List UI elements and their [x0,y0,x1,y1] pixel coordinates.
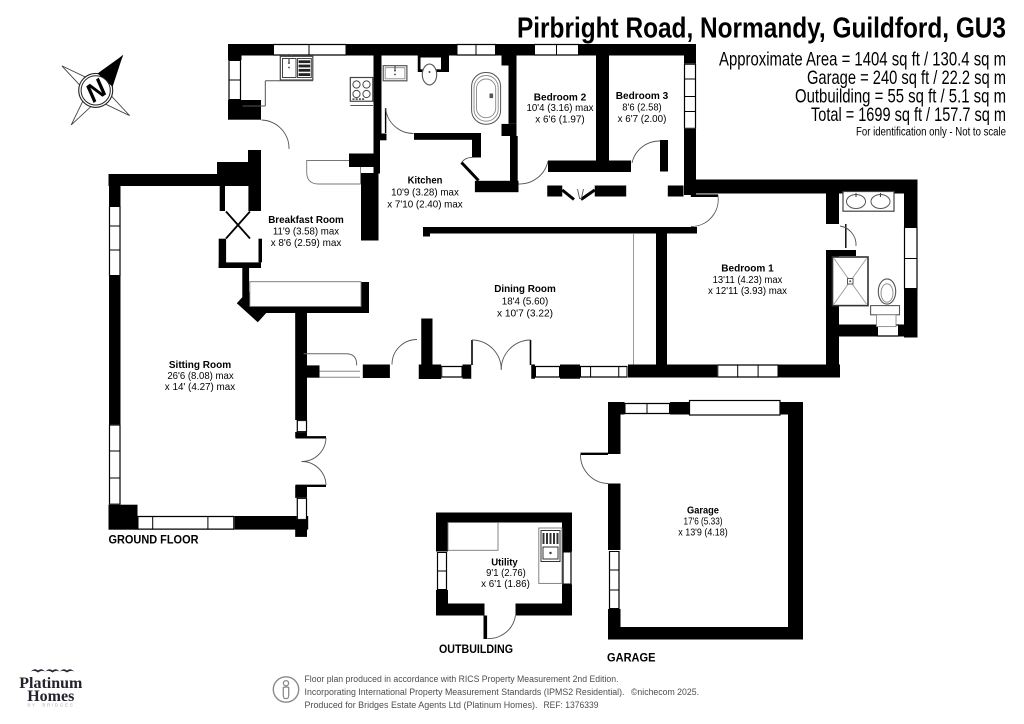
svg-text:x 14' (4.27) max: x 14' (4.27) max [165,382,235,393]
svg-text:Floor plan produced in accorda: Floor plan produced in accordance with R… [305,674,619,684]
svg-text:10'4 (3.16) max: 10'4 (3.16) max [527,103,594,114]
svg-text:For identification only - Not: For identification only - Not to scale [856,127,1006,139]
svg-text:Incorporating International Pr: Incorporating International Property Mea… [305,687,625,697]
svg-text:18'4 (5.60): 18'4 (5.60) [502,297,549,308]
svg-text:Total = 1699 sq ft / 157.7 sq: Total = 1699 sq ft / 157.7 sq m [811,104,1006,126]
svg-text:8'6 (2.58): 8'6 (2.58) [622,103,661,114]
svg-text:Utility: Utility [491,558,518,569]
svg-text:11'9 (3.58) max: 11'9 (3.58) max [273,227,339,238]
svg-text:9'1 (2.76): 9'1 (2.76) [486,568,526,579]
svg-text:Breakfast Room: Breakfast Room [268,215,344,226]
svg-text:GROUND FLOOR: GROUND FLOOR [109,535,200,547]
svg-text:OUTBUILDING: OUTBUILDING [439,644,513,656]
svg-text:x 6'6 (1.97): x 6'6 (1.97) [535,114,584,125]
svg-text:x 13'9 (4.18): x 13'9 (4.18) [678,528,728,539]
svg-text:GARAGE: GARAGE [607,653,656,665]
svg-text:x 6'7 (2.00): x 6'7 (2.00) [618,114,667,125]
svg-text:x 8'6 (2.59) max: x 8'6 (2.59) max [271,238,342,249]
svg-text:17'6 (5.33): 17'6 (5.33) [684,517,723,528]
svg-text:x 12'11 (3.93) max: x 12'11 (3.93) max [708,286,787,297]
svg-text:©nichecom 2025.: ©nichecom 2025. [631,687,699,697]
svg-text:REF: 1376339: REF: 1376339 [544,700,599,710]
svg-text:Garage: Garage [687,506,719,517]
svg-text:Produced for Bridges Estate Ag: Produced for Bridges Estate Agents Ltd (… [305,700,538,710]
svg-text:Bedroom 1: Bedroom 1 [721,264,774,275]
svg-text:Bedroom 2: Bedroom 2 [534,92,587,103]
svg-text:Bedroom 3: Bedroom 3 [616,91,669,102]
svg-text:Kitchen: Kitchen [408,176,443,187]
svg-text:x 7'10 (2.40) max: x 7'10 (2.40) max [387,200,462,211]
svg-text:BY BRIDGES: BY BRIDGES [27,703,74,708]
svg-text:26'6 (8.08) max: 26'6 (8.08) max [167,371,233,382]
svg-text:Pirbright Road, Normandy, Guil: Pirbright Road, Normandy, Guildford, GU3 [517,13,1006,45]
svg-text:x 10'7 (3.22): x 10'7 (3.22) [497,309,553,320]
svg-text:10'9 (3.28) max: 10'9 (3.28) max [391,188,459,199]
svg-text:x 6'1 (1.86): x 6'1 (1.86) [481,579,530,590]
svg-text:13'11 (4.23) max: 13'11 (4.23) max [713,275,783,286]
svg-text:Dining Room: Dining Room [494,284,556,295]
svg-text:Sitting Room: Sitting Room [169,360,231,371]
